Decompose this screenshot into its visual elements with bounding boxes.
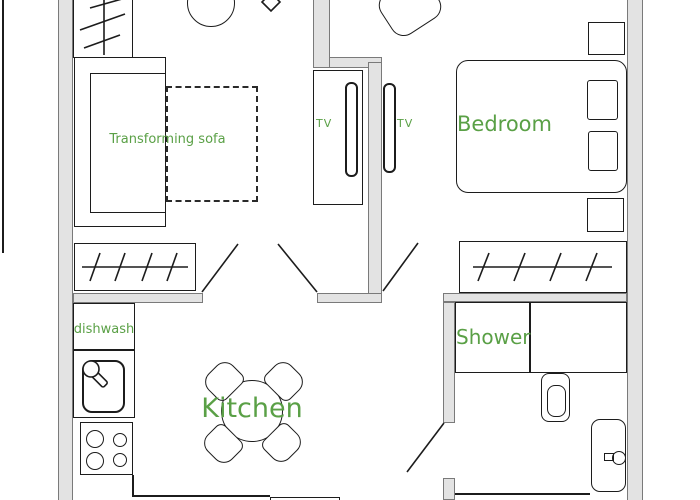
tv-screen-living — [345, 82, 358, 177]
burner-small-1 — [113, 433, 127, 447]
wall-living-south-left — [73, 293, 203, 303]
burner-large-2 — [86, 452, 104, 470]
bathroom-south-edge — [455, 493, 590, 495]
label-kitchen: Kitchen — [192, 393, 312, 424]
door-leaf-bedroom — [383, 243, 418, 291]
armchair-bedroom — [373, 0, 446, 41]
wardrobe-bedroom — [459, 241, 627, 293]
tv-screen-bedroom — [383, 83, 396, 173]
label-transforming-sofa: Transforming sofa — [100, 132, 235, 147]
wardrobe-living — [74, 243, 196, 291]
sink-basin — [82, 360, 125, 413]
label-tv-living: TV — [316, 117, 332, 130]
exterior-edge-line — [2, 0, 4, 253]
wall-entry-vertical — [313, 0, 330, 68]
wall-bathroom-west-lower — [443, 478, 455, 500]
wall-left — [58, 0, 73, 500]
door-leaf-bathroom — [407, 423, 444, 472]
door-handle-knob — [612, 451, 626, 465]
counter-edge-horizontal — [132, 495, 270, 497]
nightstand-bottom — [587, 198, 624, 232]
door-leaf-double-right — [278, 244, 317, 292]
label-tv-bedroom: TV — [397, 117, 413, 130]
door-pivot-diamond — [262, 0, 280, 11]
label-bedroom: Bedroom — [457, 112, 552, 136]
label-dishwash: dishwash — [73, 322, 135, 337]
wall-bathroom-north — [443, 293, 627, 302]
burner-large-1 — [86, 430, 104, 448]
round-chair — [187, 0, 235, 27]
nightstand-top — [588, 22, 625, 55]
wall-living-south-right — [317, 293, 382, 303]
label-shower: Shower — [456, 325, 531, 349]
wall-right — [627, 0, 643, 500]
wall-central — [368, 62, 382, 303]
counter-edge-vertical — [132, 475, 134, 496]
pillow-bottom — [588, 131, 618, 171]
pillow-top — [587, 80, 618, 120]
wall-bathroom-west-upper — [443, 302, 455, 423]
bathroom-counter — [530, 302, 627, 373]
toilet-bowl — [547, 385, 566, 417]
floor-plan: Transforming sofa TV TV Bedroom dishwash… — [0, 0, 700, 500]
door-leaf-double-left — [202, 244, 238, 292]
burner-small-2 — [113, 453, 127, 467]
closet-top-left — [73, 0, 133, 58]
door-handle-plate — [604, 453, 614, 461]
